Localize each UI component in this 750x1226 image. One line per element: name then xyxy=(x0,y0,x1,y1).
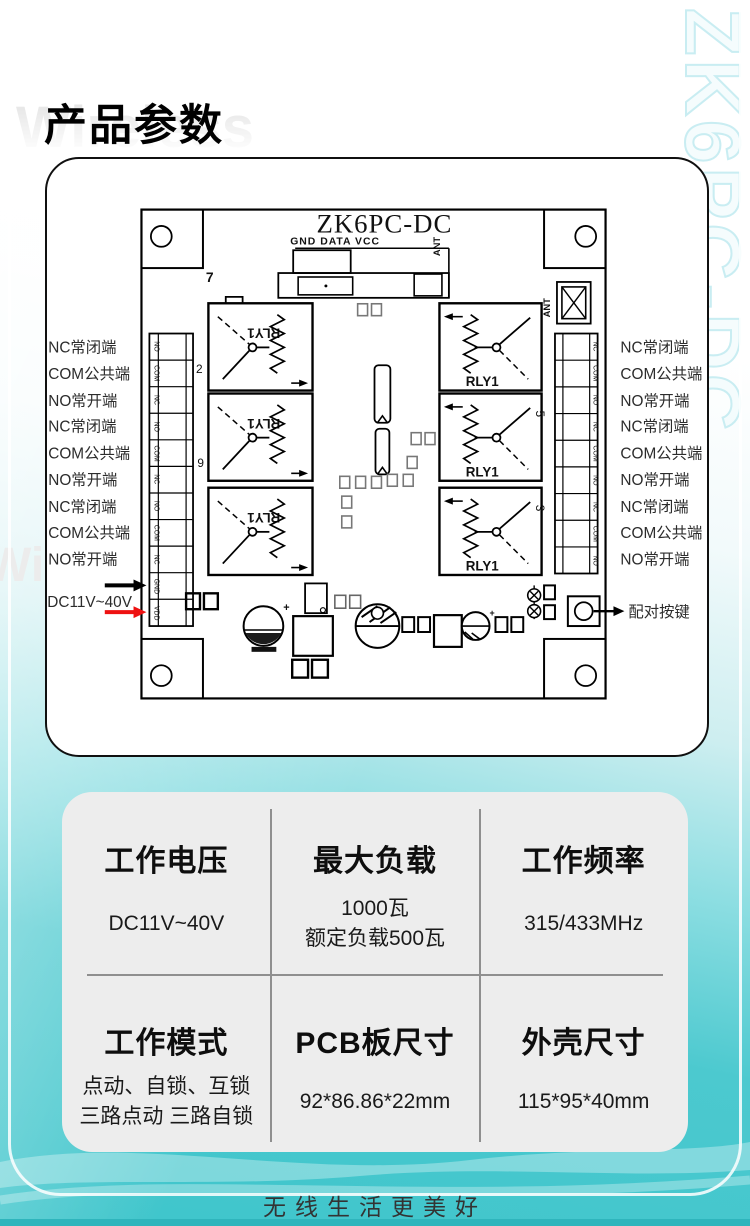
terminal-label: NC常闭端 xyxy=(48,418,116,436)
pin-label: NO xyxy=(592,475,599,486)
terminal-label: NO常开端 xyxy=(620,471,689,489)
product-parameters-page: ZK6PC-DC Wireless Wireless 产品参数 RLY1 xyxy=(0,0,750,1226)
terminal-label: COM公共端 xyxy=(620,524,702,542)
svg-text:+: + xyxy=(490,608,495,618)
terminal-label: COM公共端 xyxy=(620,365,702,383)
terminal-label: NC常闭端 xyxy=(48,498,116,516)
spec-value: 115*95*40mm xyxy=(518,1087,650,1117)
pin-label: NC xyxy=(152,474,159,484)
pin-label: NC xyxy=(592,502,599,512)
relay-box xyxy=(208,488,312,575)
pin-label: VDD xyxy=(152,606,159,621)
pair-arrow xyxy=(613,606,624,616)
pin-label: COM xyxy=(592,365,599,381)
terminal-label: NO常开端 xyxy=(620,392,689,410)
relay-box xyxy=(208,394,312,481)
pin-label: COM xyxy=(152,365,159,381)
terminal-label: NO常开端 xyxy=(48,551,117,569)
pin-label: NC xyxy=(152,395,159,405)
pcb-diagram: RLY1 RL xyxy=(47,159,702,750)
pin-label: NO xyxy=(592,555,599,566)
spec-value: 三路点动 三路自锁 xyxy=(79,1102,253,1132)
svg-text:+: + xyxy=(283,602,289,614)
terminal-label: NO常开端 xyxy=(48,392,117,410)
num-2: 2 xyxy=(196,362,203,376)
bottom-band xyxy=(0,1219,750,1226)
spec-cell-voltage: 工作电压 DC11V~40V xyxy=(62,792,271,974)
pin-label: COM xyxy=(152,445,159,461)
terminal-label: NC常闭端 xyxy=(48,338,116,356)
spec-title: 工作频率 xyxy=(522,836,646,880)
terminal-label: NC常闭端 xyxy=(620,498,688,516)
page-title: 产品参数 xyxy=(44,91,224,153)
spec-cell-pcb-size: PCB板尺寸 92*86.86*22mm xyxy=(271,974,480,1152)
terminal-label: COM公共端 xyxy=(48,365,130,383)
pin-label: NO xyxy=(152,422,159,433)
pin-label: NC xyxy=(152,555,159,565)
terminal-label: NO常开端 xyxy=(48,471,117,489)
relay-box xyxy=(439,488,541,575)
pin-label: NC xyxy=(592,341,599,351)
terminal-label: NC常闭端 xyxy=(620,418,688,436)
pin-label: NO xyxy=(152,501,159,512)
spec-title: 工作模式 xyxy=(104,1018,228,1062)
pin-label: GND xyxy=(152,579,159,594)
num-5: 5 xyxy=(533,411,547,418)
left-annotations: NC常闭端 COM公共端 NO常开端 NC常闭端 COM公共端 NO常开端 NC… xyxy=(47,338,146,618)
spec-cell-shell-size: 外壳尺寸 115*95*40mm xyxy=(479,974,688,1152)
spec-value: 92*86.86*22mm xyxy=(300,1087,451,1117)
terminal-label: NC常闭端 xyxy=(620,338,688,356)
num-7: 7 xyxy=(206,269,214,285)
spec-title: 工作电压 xyxy=(104,836,228,880)
terminal-label: COM公共端 xyxy=(620,444,702,462)
power-label: DC11V~40V xyxy=(47,594,132,611)
pin-label: COM xyxy=(592,526,599,542)
relay-box xyxy=(208,303,312,390)
spec-value: 额定负载500瓦 xyxy=(305,924,445,954)
spec-title: 最大负载 xyxy=(313,836,437,880)
relay-box xyxy=(439,394,541,481)
spec-cell-max-load: 最大负载 1000瓦 额定负载500瓦 xyxy=(271,792,480,974)
pin-label: NO xyxy=(592,395,599,406)
spec-cell-frequency: 工作频率 315/433MHz xyxy=(479,792,688,974)
terminal-label: COM公共端 xyxy=(48,444,130,462)
board-title: ZK6PC-DC xyxy=(317,208,453,238)
pin-label: NO xyxy=(152,341,159,352)
spec-value: DC11V~40V xyxy=(108,909,224,939)
terminal-label: COM公共端 xyxy=(48,524,130,542)
pin-label: NC xyxy=(592,422,599,432)
footer-slogan: 无线生活更美好 xyxy=(0,1188,750,1222)
spec-title: 外壳尺寸 xyxy=(522,1018,646,1062)
pcb-diagram-card: RLY1 RL xyxy=(45,157,709,757)
right-annotations: NC常闭端 COM公共端 NO常开端 NC常闭端 COM公共端 NO常开端 NC… xyxy=(594,338,702,621)
relay-box xyxy=(439,303,541,390)
spec-value: 315/433MHz xyxy=(524,909,643,939)
pair-label: 配对按键 xyxy=(628,603,689,621)
spec-title: PCB板尺寸 xyxy=(295,1018,454,1062)
num-6: 6 xyxy=(197,455,204,469)
spec-table: 工作电压 DC11V~40V 最大负载 1000瓦 额定负载500瓦 工作频率 … xyxy=(62,792,688,1152)
spec-value: 1000瓦 xyxy=(305,894,445,924)
num-3: 3 xyxy=(533,505,547,512)
spec-value: 点动、自锁、互锁 xyxy=(79,1072,253,1102)
pin-label: COM xyxy=(592,445,599,461)
ant-label-top: ANT xyxy=(431,237,442,257)
spec-cell-work-mode: 工作模式 点动、自锁、互锁 三路点动 三路自锁 xyxy=(62,974,271,1152)
terminal-label: NO常开端 xyxy=(620,551,689,569)
header-pins-label: GND DATA VCC xyxy=(290,236,380,247)
pin-label: COM xyxy=(152,525,159,541)
